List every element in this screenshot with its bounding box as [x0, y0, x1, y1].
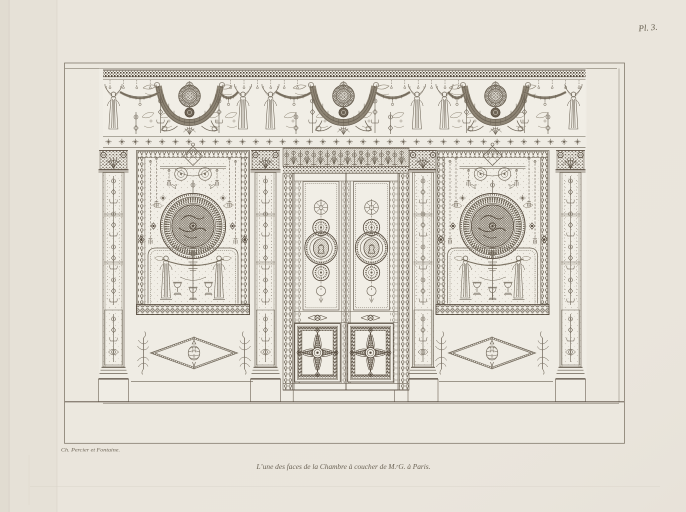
svg-text:L’une des faces de la Chambre: L’une des faces de la Chambre à coucher … — [255, 463, 430, 471]
svg-text:Ch. Percier et Fontaine.: Ch. Percier et Fontaine. — [61, 448, 120, 454]
svg-text:Pl. 3.: Pl. 3. — [637, 22, 658, 34]
